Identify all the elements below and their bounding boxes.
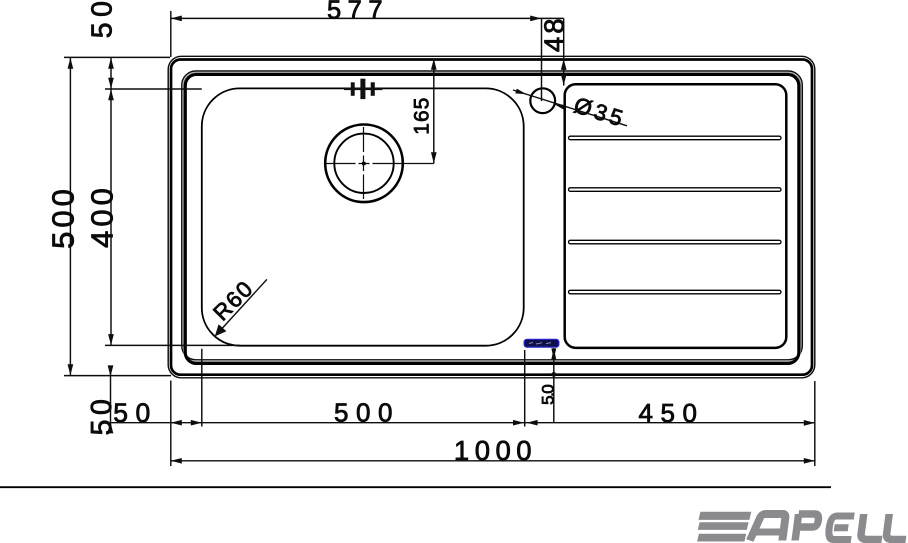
svg-text:Ø35: Ø35 (571, 92, 629, 132)
svg-text:1000: 1000 (454, 435, 537, 466)
svg-text:500: 500 (334, 398, 400, 428)
svg-text:50: 50 (113, 398, 157, 428)
svg-text:5.0: 5.0 (539, 385, 558, 405)
svg-text:500: 500 (46, 185, 81, 249)
svg-text:165: 165 (411, 97, 434, 135)
svg-text:577: 577 (327, 0, 389, 25)
svg-text:R60: R60 (208, 275, 258, 325)
svg-text:450: 450 (639, 398, 705, 428)
svg-text:50: 50 (86, 0, 118, 38)
svg-text:400: 400 (85, 184, 120, 248)
svg-text:48: 48 (539, 16, 570, 53)
